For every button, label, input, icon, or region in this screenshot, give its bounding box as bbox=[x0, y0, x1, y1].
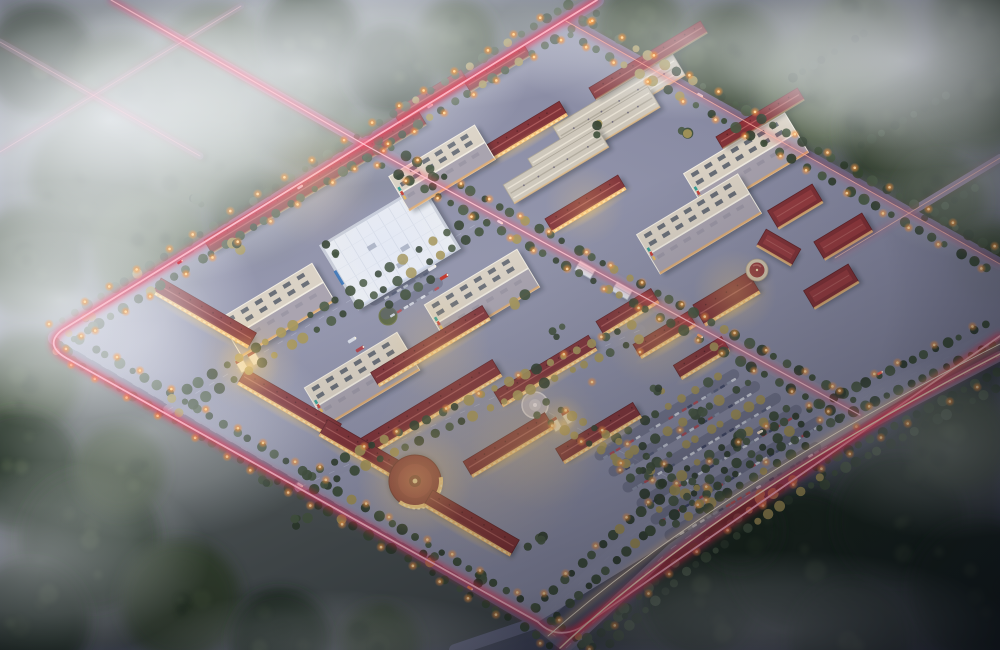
layer-vig bbox=[0, 0, 1000, 650]
corner-darkening bbox=[0, 0, 1000, 650]
industrial-park-render bbox=[0, 0, 1000, 650]
aerial-render-image: Aerial dusk rendering of a large industr… bbox=[0, 0, 1000, 650]
